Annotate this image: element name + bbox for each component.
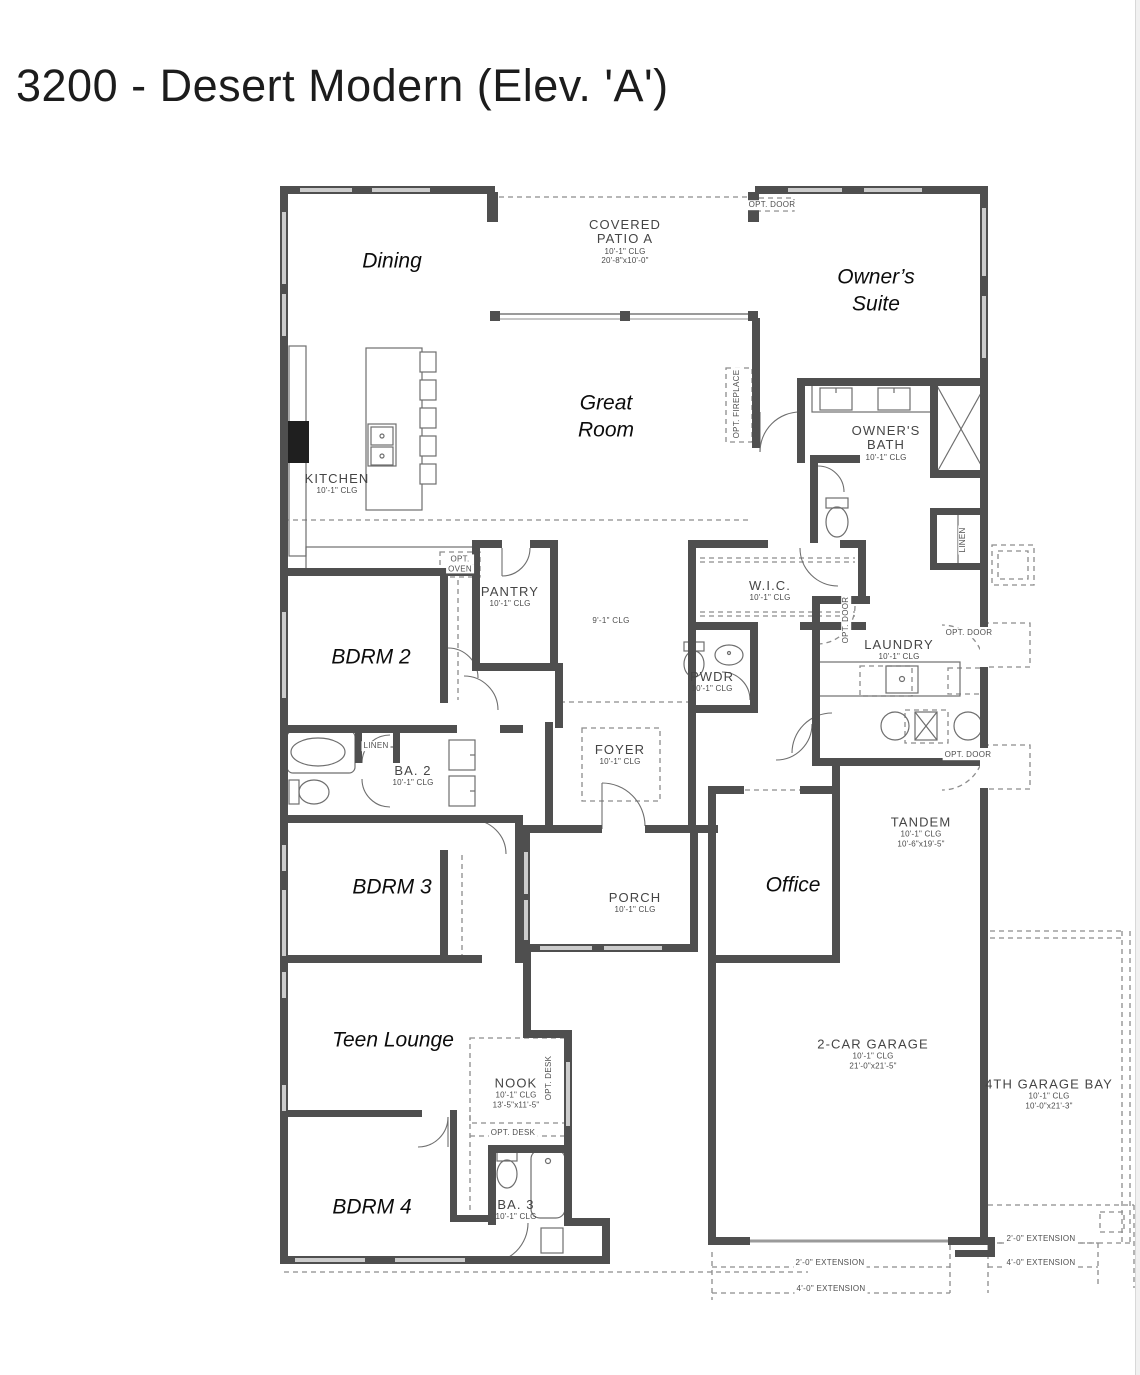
door-swings: [362, 412, 844, 1263]
scrollbar-track[interactable]: [1135, 0, 1140, 1375]
floor-plan-page: 3200 - Desert Modern (Elev. 'A'): [0, 0, 1140, 1375]
floor-plan: DiningOwner’sSuiteGreatRoomBDRM 2BDRM 3O…: [0, 0, 1140, 1375]
floor-plan-drawing: [0, 0, 1140, 1375]
